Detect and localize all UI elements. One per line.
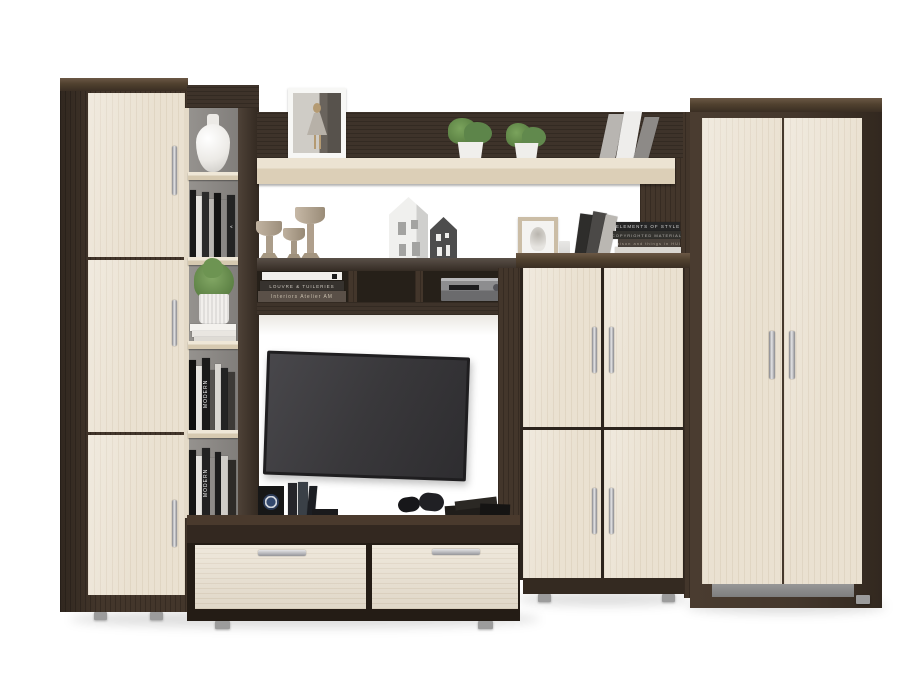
wardrobe-door-right [784, 118, 862, 584]
book-spine-label: LOUVRE & TUILERIES [260, 281, 344, 291]
book [228, 460, 236, 518]
shelf-board [188, 430, 238, 438]
shelf-column-frame [238, 108, 259, 518]
dvd-case [288, 483, 297, 518]
cabinet-foot [94, 612, 107, 620]
candlestick-cup [256, 221, 282, 236]
cabinet-foot [538, 594, 551, 602]
door-handle [769, 331, 775, 379]
house-window [436, 234, 441, 241]
middle-cabinet-base [523, 578, 684, 594]
bridge-bottom-board [257, 302, 520, 315]
left-cabinet-top [60, 78, 188, 91]
house-figurine-white [389, 197, 428, 260]
house-window [412, 242, 420, 256]
photo-figure-head [313, 103, 321, 113]
house-window [446, 245, 450, 256]
book [189, 360, 196, 430]
middle-cabinet-door-bl [523, 430, 601, 578]
candlestick-stem [307, 224, 314, 253]
round-emblem [263, 494, 279, 510]
book-horizontal [262, 272, 342, 280]
book-spine-label: Interiors Atelier AM [258, 291, 346, 302]
photo [293, 93, 341, 153]
furniture-wall-unit-photo: A MODERN MODERN [0, 0, 910, 695]
middle-cabinet-door-tl [523, 268, 601, 427]
hifi-receiver [441, 278, 505, 301]
cabinet-foot [662, 594, 675, 602]
middle-cabinet-top [516, 253, 692, 268]
candlestick-stem [291, 241, 297, 254]
left-cabinet-door-middle [88, 260, 185, 432]
plant-pot [456, 142, 485, 159]
left-cabinet-door-top [88, 93, 185, 257]
succulent-plant [203, 258, 223, 278]
house-window [437, 247, 442, 256]
potted-plant [464, 122, 492, 144]
middle-cabinet-door-br [604, 430, 683, 578]
tv-screen [266, 354, 467, 479]
house-window [445, 233, 449, 238]
shelf-board [188, 341, 238, 349]
book-spine-label: COPYRIGHTED MATERIAL [613, 231, 681, 239]
tv-niche-right-support [498, 268, 520, 518]
house-figurine-dark [430, 217, 457, 260]
top-shelf-board [257, 158, 675, 184]
bridge-divider [415, 271, 423, 302]
book-spine-label: Maison and things in HULL [618, 239, 680, 247]
book [202, 192, 209, 257]
door-handle [609, 488, 614, 534]
book-spine-label: MODERN [202, 358, 210, 430]
wardrobe-top [690, 98, 882, 112]
middle-cabinet-door-tr [604, 268, 683, 427]
shelf-column-top [187, 85, 259, 108]
book-spine-label: A [227, 195, 235, 257]
photo-frame [288, 88, 346, 158]
door-handle [172, 146, 177, 195]
book: A [227, 195, 235, 257]
book [221, 456, 228, 518]
stand-foot [478, 621, 493, 629]
sketch [530, 227, 546, 251]
photo-figure-legs [319, 135, 321, 149]
door-handle [592, 327, 597, 373]
house-window [411, 220, 418, 229]
door-handle [172, 300, 177, 346]
drawer-handle [432, 549, 480, 555]
house-window [398, 222, 406, 235]
candlestick-cup [283, 228, 305, 241]
book [228, 372, 235, 430]
book [214, 193, 221, 257]
photo-figure-legs [314, 135, 316, 149]
door-handle [789, 331, 795, 379]
stacked-book: COPYRIGHTED MATERIAL [613, 231, 681, 239]
bridge-divider [348, 271, 357, 302]
candlestick-cup [295, 207, 325, 224]
book [221, 368, 228, 430]
photo-figure-dress [307, 113, 327, 135]
cabinet-foot [150, 612, 163, 620]
plant-pot [513, 143, 540, 159]
cabinet-foot [856, 595, 870, 604]
ribbed-pot [199, 294, 229, 324]
left-cabinet-door-bottom [88, 435, 185, 595]
book [189, 450, 196, 518]
book-spine-label: MODERN [202, 448, 210, 518]
book-stack [190, 324, 236, 331]
book-horizontal: LOUVRE & TUILERIES [260, 281, 344, 291]
wardrobe-plinth [712, 584, 854, 597]
shelf-board [188, 172, 238, 180]
stacked-book: Maison and things in HULL [618, 239, 680, 247]
stacked-book: ELEMENTS OF STYLE [616, 222, 680, 231]
speaker-box [258, 486, 284, 518]
stand-foot [215, 621, 230, 629]
book: MODERN [202, 358, 210, 430]
door-handle [592, 488, 597, 534]
book-horizontal: Interiors Atelier AM [258, 291, 346, 302]
barcode-mark [332, 274, 337, 279]
candlestick-stem [266, 236, 273, 253]
bridge-top-board [257, 258, 520, 271]
house-window [399, 244, 406, 256]
book-spine-label: ELEMENTS OF STYLE [616, 222, 680, 231]
tv-stand-top [187, 515, 520, 543]
door-handle [609, 327, 614, 373]
tv [263, 350, 470, 481]
book: MODERN [202, 448, 210, 518]
door-handle [172, 500, 177, 547]
drawer-handle [258, 550, 306, 556]
receiver-display [449, 285, 479, 290]
